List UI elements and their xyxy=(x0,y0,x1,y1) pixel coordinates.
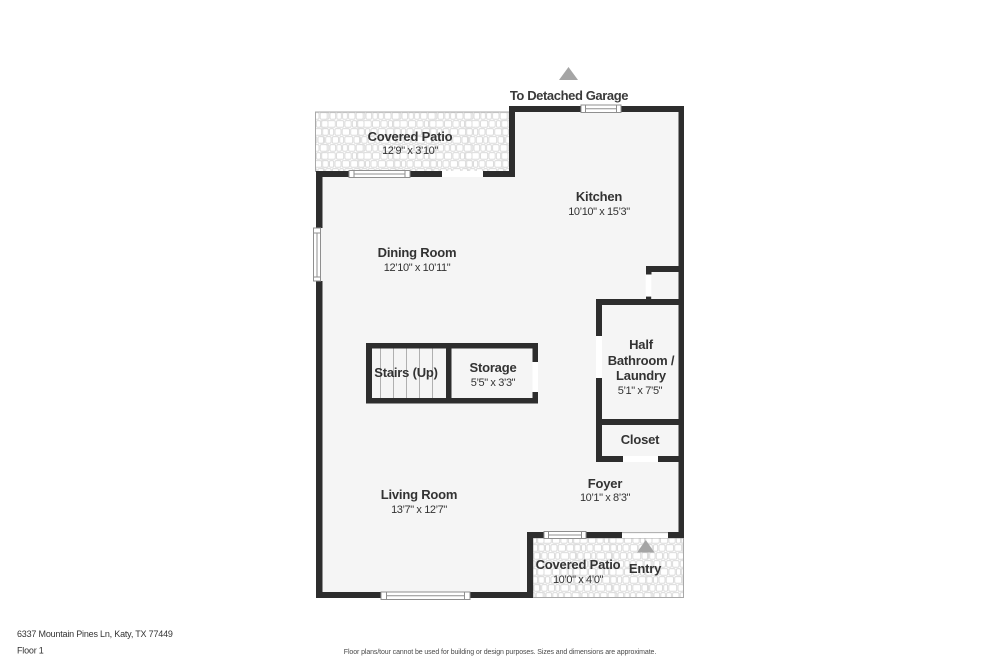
svg-text:Laundry: Laundry xyxy=(616,368,667,383)
svg-text:Living Room: Living Room xyxy=(381,487,458,502)
svg-text:Foyer: Foyer xyxy=(588,476,623,491)
svg-text:Bathroom /: Bathroom / xyxy=(608,353,675,368)
svg-text:Storage: Storage xyxy=(469,360,516,375)
svg-text:12’10" x 10’11": 12’10" x 10’11" xyxy=(384,262,451,274)
svg-text:5’1" x 7’5": 5’1" x 7’5" xyxy=(618,385,663,397)
svg-text:Entry: Entry xyxy=(629,561,662,576)
svg-text:5’5" x 3’3": 5’5" x 3’3" xyxy=(471,377,516,389)
svg-text:12’9" x 3’10": 12’9" x 3’10" xyxy=(382,145,438,157)
svg-text:Half: Half xyxy=(629,337,654,352)
svg-text:Kitchen: Kitchen xyxy=(576,189,623,204)
svg-text:13’7" x 12’7": 13’7" x 12’7" xyxy=(391,504,447,516)
svg-text:Floor 1: Floor 1 xyxy=(17,646,44,656)
svg-text:10’0" x 4’0": 10’0" x 4’0" xyxy=(553,574,604,586)
svg-text:Covered Patio: Covered Patio xyxy=(536,557,621,572)
svg-text:Stairs (Up): Stairs (Up) xyxy=(374,365,438,380)
svg-text:Covered Patio: Covered Patio xyxy=(368,129,453,144)
svg-text:Closet: Closet xyxy=(621,432,660,447)
svg-text:6337 Mountain Pines Ln, Katy,: 6337 Mountain Pines Ln, Katy, TX 77449 xyxy=(17,629,173,639)
svg-text:To Detached Garage: To Detached Garage xyxy=(510,88,628,103)
svg-text:Floor plans/tour cannot be use: Floor plans/tour cannot be used for buil… xyxy=(344,649,657,656)
svg-text:10’10" x 15’3": 10’10" x 15’3" xyxy=(568,206,630,218)
svg-text:Dining Room: Dining Room xyxy=(378,245,457,260)
svg-text:10’1" x 8’3": 10’1" x 8’3" xyxy=(580,492,631,504)
